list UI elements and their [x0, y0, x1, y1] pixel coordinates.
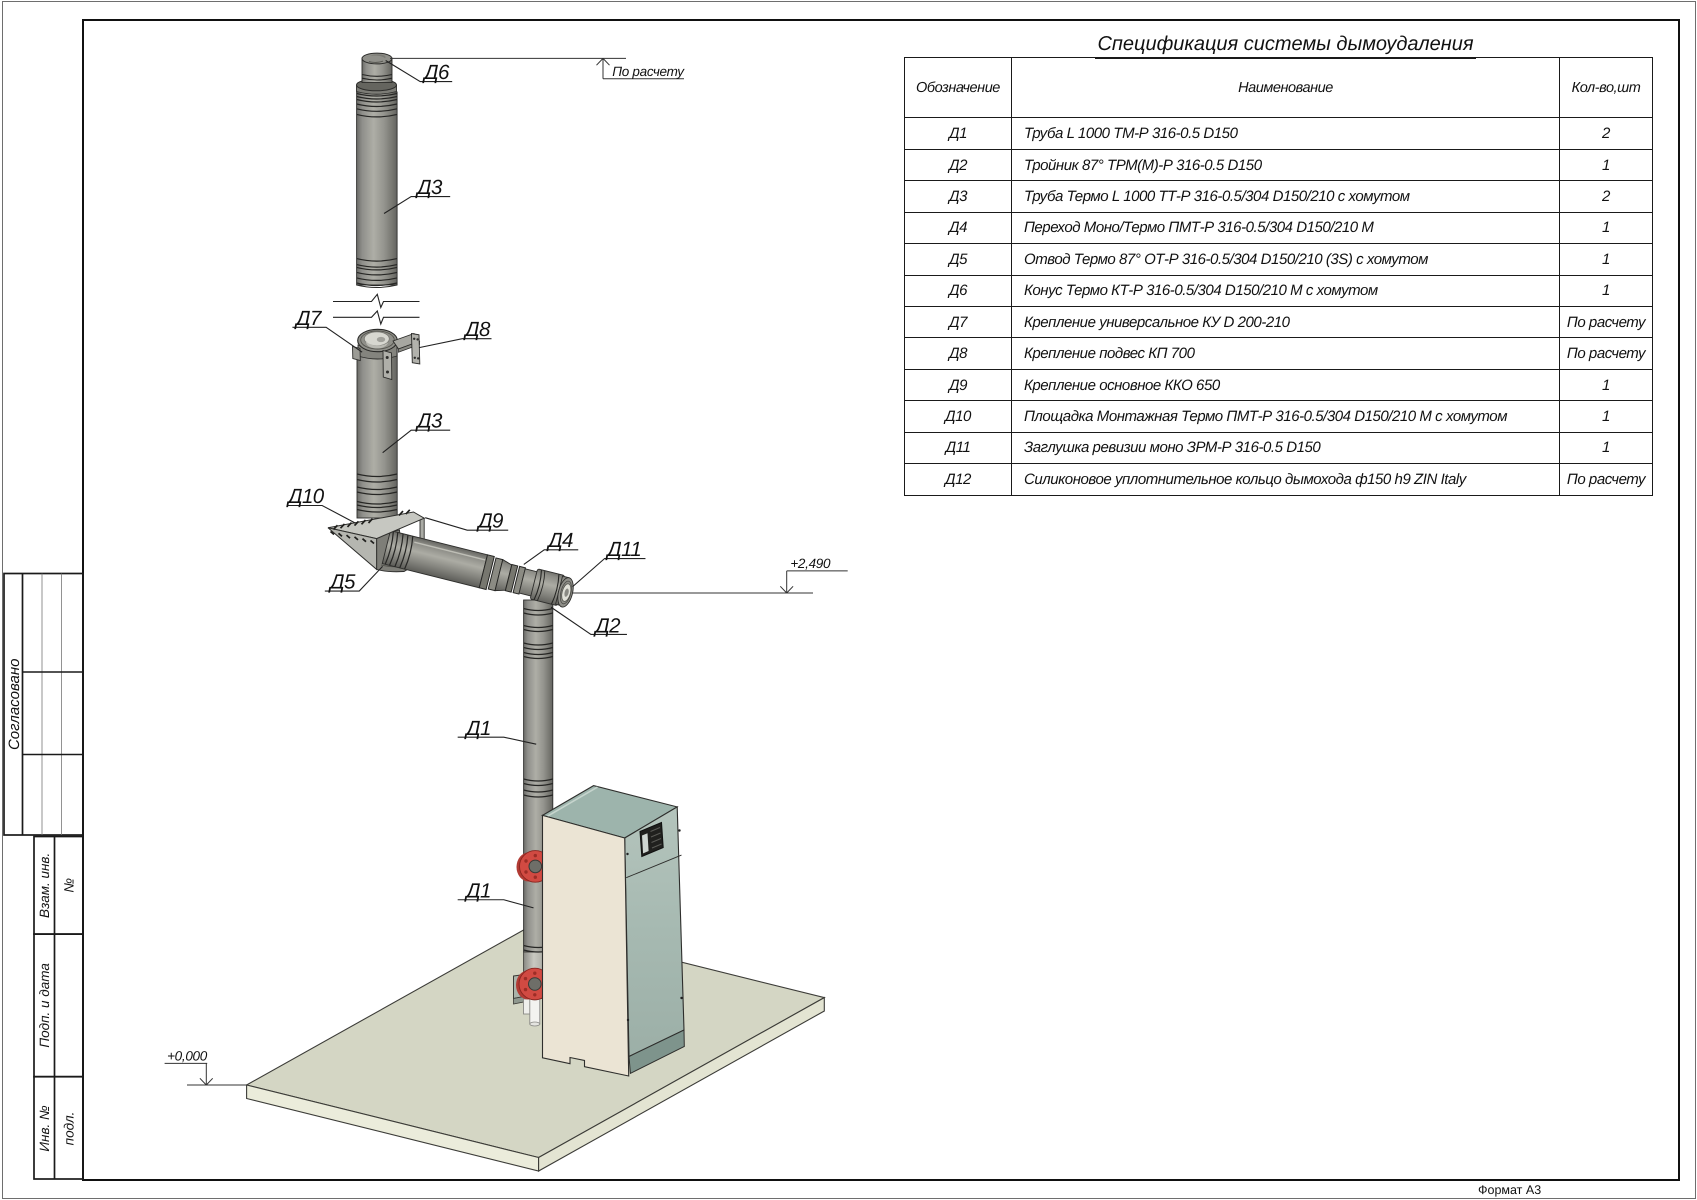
svg-text:Д9: Д9: [476, 510, 503, 533]
svg-text:+0,000: +0,000: [167, 1048, 208, 1063]
svg-text:+2,490: +2,490: [790, 556, 831, 571]
svg-text:По расчету: По расчету: [612, 64, 685, 79]
svg-text:Д11: Д11: [605, 538, 641, 561]
svg-text:Д1: Д1: [464, 879, 491, 902]
svg-text:Д8: Д8: [463, 318, 491, 341]
svg-text:Д3: Д3: [415, 176, 443, 199]
svg-text:Д10: Д10: [286, 485, 325, 508]
svg-text:Д2: Д2: [593, 614, 621, 637]
svg-text:Д6: Д6: [422, 61, 450, 84]
svg-text:Д4: Д4: [546, 529, 573, 552]
svg-text:Д5: Д5: [328, 571, 356, 594]
svg-text:Д1: Д1: [464, 717, 491, 740]
svg-text:Д3: Д3: [415, 410, 443, 433]
svg-text:Д7: Д7: [294, 307, 323, 330]
